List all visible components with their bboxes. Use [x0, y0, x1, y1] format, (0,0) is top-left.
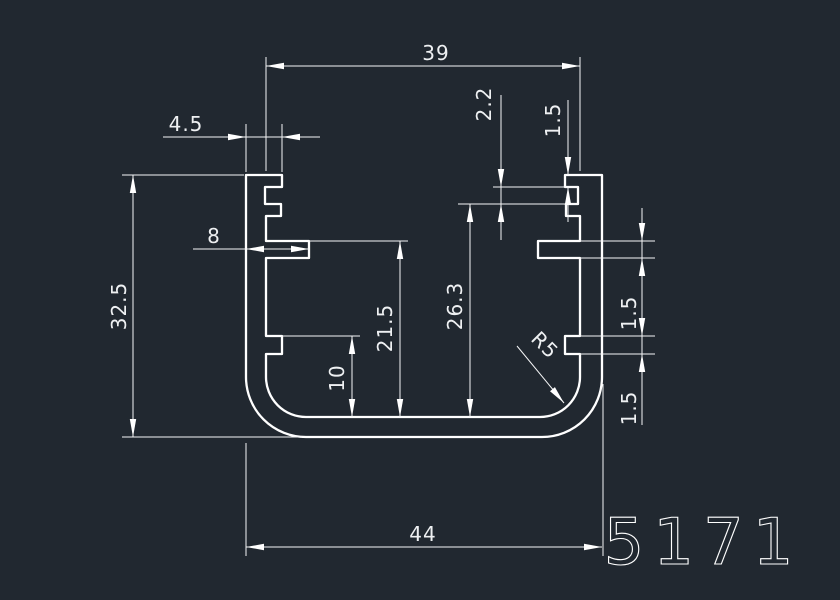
- dim-label-39: 39: [422, 41, 449, 65]
- dim-label-8: 8: [207, 224, 221, 248]
- dim-label-32-5: 32.5: [107, 282, 131, 331]
- profile-outline: [246, 175, 602, 437]
- dimension-labels: 39 4.5 2.2 1.5 32.5 8 21.5 26.3 10 1.5 1…: [107, 41, 641, 546]
- dim-label-4-5: 4.5: [169, 112, 204, 136]
- dim-label-21-5: 21.5: [373, 304, 397, 353]
- dim-label-26-3: 26.3: [443, 282, 467, 331]
- dim-label-44: 44: [409, 522, 436, 546]
- dim-label-2-2: 2.2: [472, 87, 496, 122]
- dim-label-1-5-rib: 1.5: [617, 391, 641, 426]
- drawing-canvas: 39 4.5 2.2 1.5 32.5 8 21.5 26.3 10 1.5 1…: [0, 0, 840, 600]
- dim-label-10: 10: [325, 364, 349, 391]
- dim-label-1-5-flange: 1.5: [617, 296, 641, 331]
- dim-label-1-5-tooth: 1.5: [541, 103, 565, 138]
- dim-label-r5: R5: [526, 326, 563, 363]
- part-number-text: 5171: [604, 506, 803, 580]
- cad-viewport: 39 4.5 2.2 1.5 32.5 8 21.5 26.3 10 1.5 1…: [0, 0, 840, 600]
